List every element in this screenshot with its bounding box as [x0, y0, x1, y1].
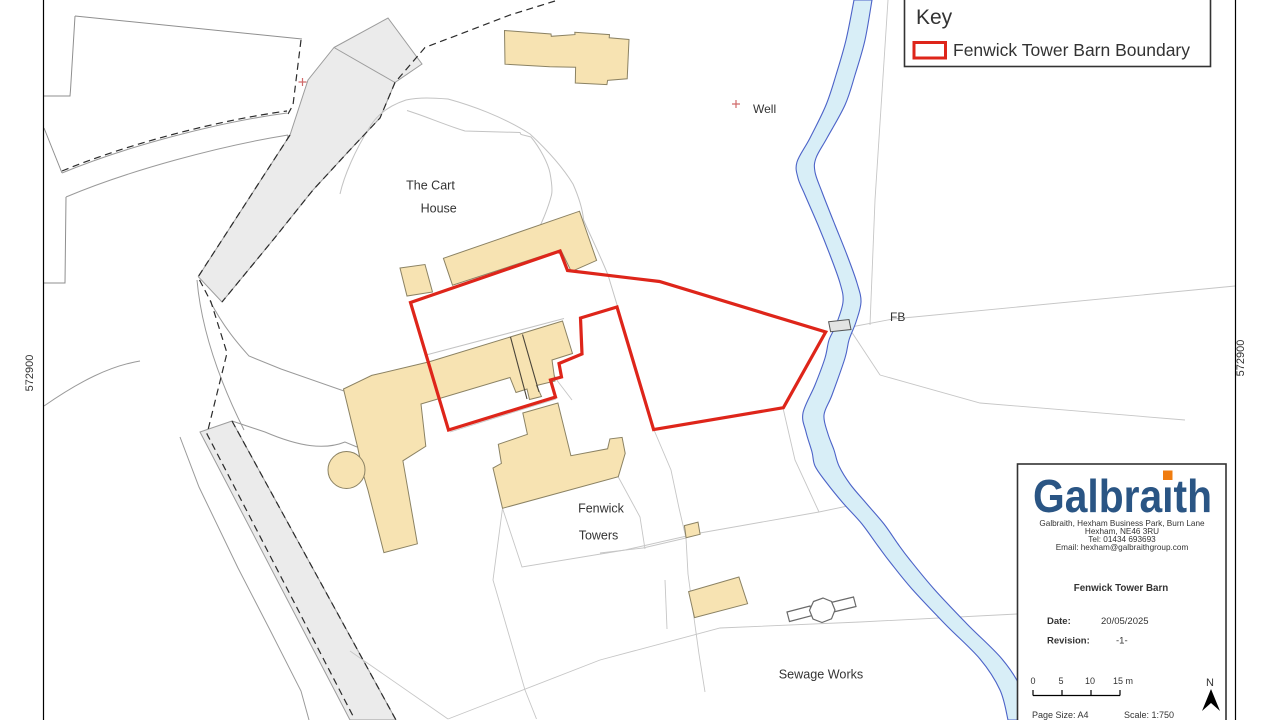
svg-text:Key: Key — [916, 6, 953, 29]
svg-text:Scale: 1:750: Scale: 1:750 — [1124, 710, 1174, 720]
svg-text:FB: FB — [890, 310, 905, 324]
svg-text:572900: 572900 — [1235, 340, 1247, 377]
svg-text:Towers: Towers — [579, 529, 619, 543]
svg-text:Email: hexham@galbraithgroup.: Email: hexham@galbraithgroup.com — [1056, 543, 1189, 552]
svg-text:Fenwick: Fenwick — [578, 502, 625, 516]
svg-text:Revision:: Revision: — [1047, 636, 1090, 647]
svg-text:Fenwick Tower Barn: Fenwick Tower Barn — [1074, 583, 1169, 594]
svg-text:-1-: -1- — [1116, 636, 1128, 647]
svg-text:15 m: 15 m — [1113, 676, 1133, 686]
svg-text:10: 10 — [1085, 676, 1095, 686]
svg-text:Sewage Works: Sewage Works — [779, 668, 863, 682]
svg-text:Well: Well — [753, 102, 776, 116]
svg-text:Date:: Date: — [1047, 616, 1071, 627]
svg-text:Fenwick Tower Barn Boundary: Fenwick Tower Barn Boundary — [953, 40, 1190, 60]
svg-text:N: N — [1206, 677, 1214, 689]
svg-text:20/05/2025: 20/05/2025 — [1101, 616, 1149, 627]
svg-text:Galbraıth: Galbraıth — [1033, 470, 1212, 522]
svg-text:House: House — [421, 202, 457, 216]
svg-text:Page Size: A4: Page Size: A4 — [1032, 710, 1089, 720]
svg-text:The Cart: The Cart — [406, 179, 455, 193]
svg-text:5: 5 — [1058, 676, 1063, 686]
svg-text:0: 0 — [1030, 676, 1035, 686]
svg-text:572900: 572900 — [24, 355, 36, 392]
